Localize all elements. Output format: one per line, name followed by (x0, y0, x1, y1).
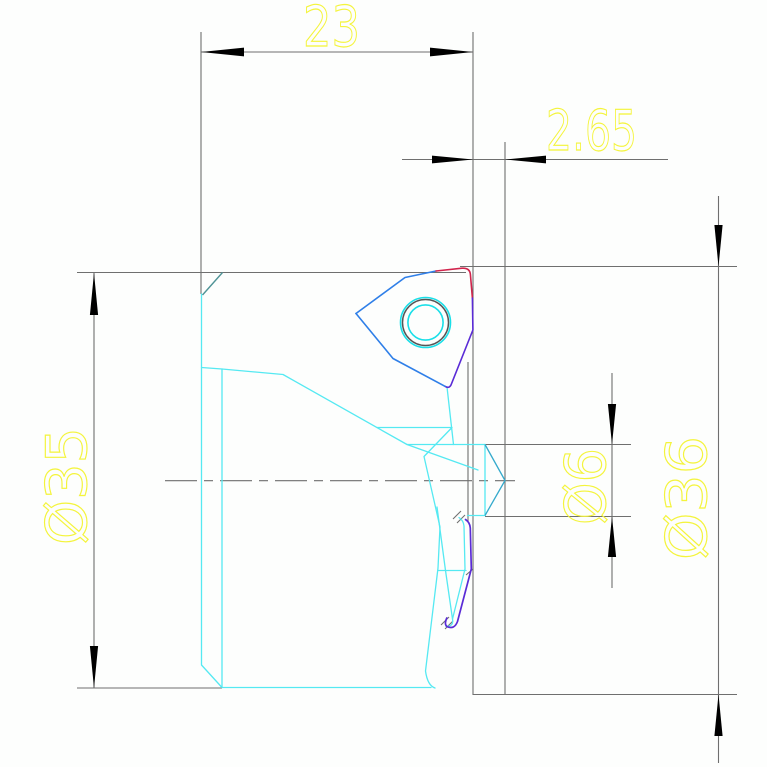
cad-viewport: 23 2.65 Ø35 Ø6 Ø36 (0, 0, 767, 767)
drawing-background (0, 0, 767, 767)
dim-label-dia6: Ø6 (554, 448, 619, 525)
dim-label-dia35: Ø35 (35, 427, 100, 545)
dim-label-offset: 2.65 (546, 99, 637, 164)
dim-label-width: 23 (303, 0, 360, 60)
cad-drawing-canvas: 23 2.65 Ø35 Ø6 Ø36 (0, 0, 767, 767)
dim-label-dia36: Ø36 (655, 436, 720, 560)
